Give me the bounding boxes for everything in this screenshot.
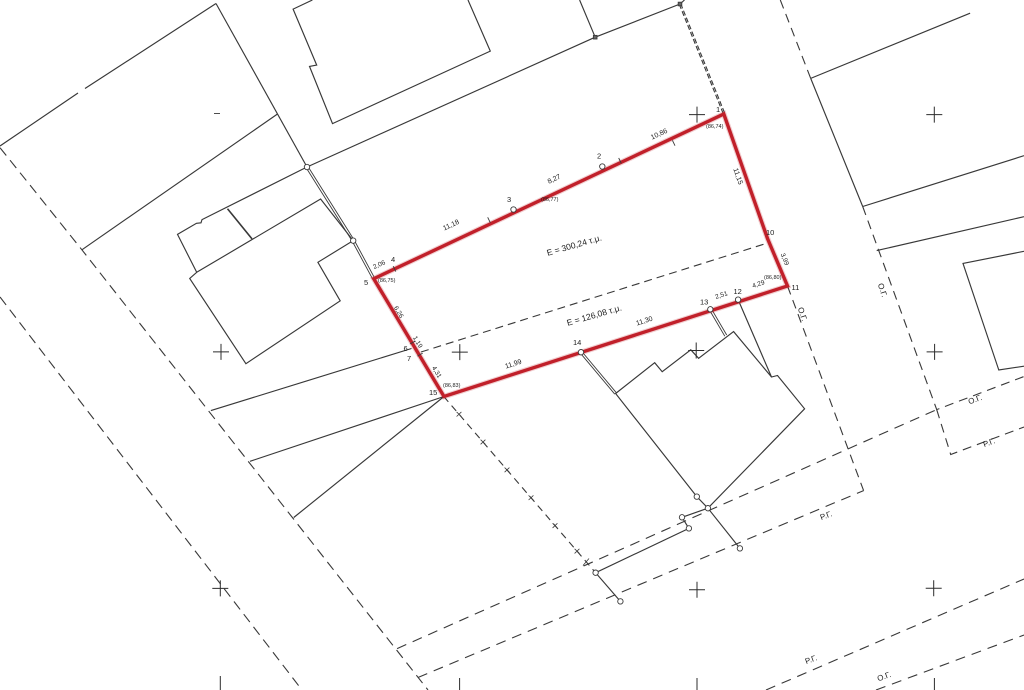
svg-text:13: 13: [700, 298, 708, 307]
svg-text:10: 10: [766, 228, 774, 237]
svg-text:(86,83): (86,83): [443, 383, 461, 389]
svg-text:15: 15: [429, 388, 437, 397]
svg-text:(86,80): (86,80): [764, 275, 782, 281]
svg-text:12: 12: [734, 287, 742, 296]
svg-text:14: 14: [573, 338, 581, 347]
svg-text:2: 2: [597, 152, 601, 161]
svg-text:1: 1: [716, 105, 720, 114]
svg-text:6: 6: [404, 344, 408, 353]
svg-text:(86,74): (86,74): [706, 124, 724, 130]
svg-text:11: 11: [792, 283, 800, 292]
svg-text:5: 5: [364, 278, 368, 287]
svg-text:(86,75): (86,75): [378, 278, 396, 284]
svg-text:(86,77): (86,77): [541, 197, 559, 203]
svg-text:7: 7: [407, 354, 411, 363]
svg-text:3: 3: [507, 195, 511, 204]
svg-text:4: 4: [391, 255, 395, 264]
